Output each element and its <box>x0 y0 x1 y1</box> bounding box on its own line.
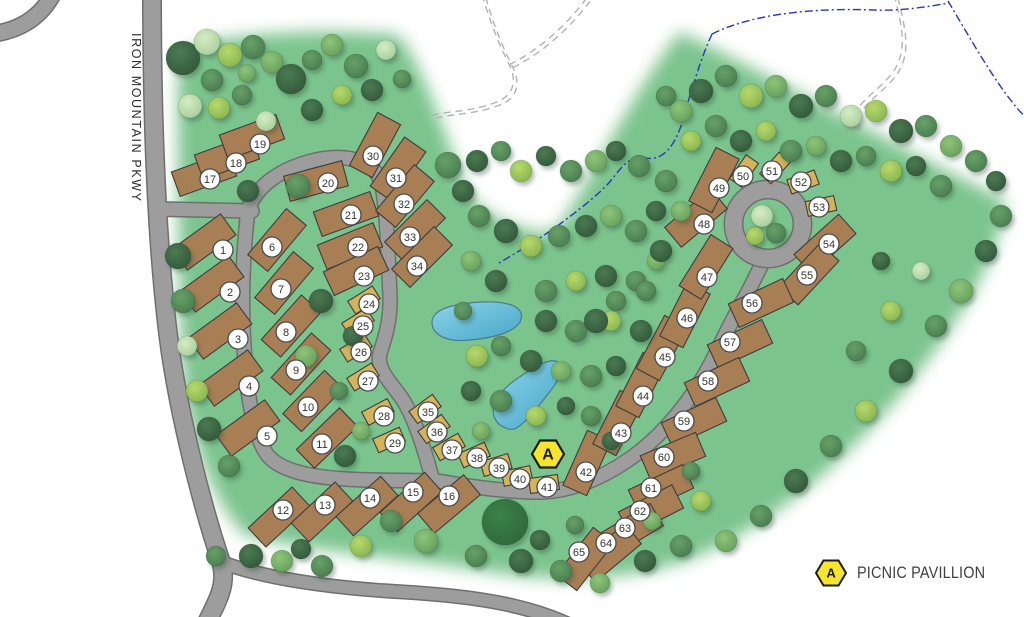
site-badge-44: 44 <box>633 386 653 406</box>
tree <box>485 270 507 292</box>
site-badge-20: 20 <box>318 173 338 193</box>
tree <box>461 251 481 271</box>
site-badge-30: 30 <box>363 146 383 166</box>
site-badge-9: 9 <box>286 360 306 380</box>
tree <box>975 240 997 262</box>
tree <box>461 381 481 401</box>
tree <box>321 34 343 56</box>
site-badge-36: 36 <box>427 422 447 442</box>
site-badge-29: 29 <box>385 433 405 453</box>
tree <box>580 365 602 387</box>
svg-text:21: 21 <box>345 210 357 222</box>
svg-text:17: 17 <box>204 174 216 186</box>
site-badge-49: 49 <box>709 178 729 198</box>
tree <box>238 64 256 82</box>
tree <box>655 170 677 192</box>
svg-text:40: 40 <box>514 474 526 486</box>
svg-text:48: 48 <box>698 219 710 231</box>
site-badge-2: 2 <box>220 282 240 302</box>
road-label: IRON MOUNTAIN PKWY <box>129 33 143 203</box>
site-badge-21: 21 <box>341 205 361 225</box>
tree <box>670 535 692 557</box>
tree <box>630 320 652 342</box>
svg-text:50: 50 <box>737 171 749 183</box>
tree <box>575 215 597 237</box>
tree <box>178 94 202 118</box>
site-badge-50: 50 <box>733 166 753 186</box>
tree <box>491 336 511 356</box>
tree <box>177 336 197 356</box>
tree <box>750 505 772 527</box>
site-badge-56: 56 <box>742 293 762 313</box>
legend-label: PICNIC PAVILLION <box>857 563 985 583</box>
tree <box>208 97 230 119</box>
tree <box>302 50 322 70</box>
tree <box>186 380 208 402</box>
tree <box>550 560 572 582</box>
svg-text:49: 49 <box>713 183 725 195</box>
tree <box>361 79 383 101</box>
svg-text:15: 15 <box>407 487 419 499</box>
site-badge-16: 16 <box>439 486 459 506</box>
map-canvas: 1234567891011121314151617181920212223242… <box>0 0 1024 617</box>
tree <box>606 291 626 311</box>
tree <box>454 302 472 320</box>
tree <box>715 65 737 87</box>
svg-text:12: 12 <box>277 505 289 517</box>
tree <box>352 422 370 440</box>
tree <box>585 150 607 172</box>
tree <box>309 289 333 313</box>
tree <box>468 205 490 227</box>
site-badge-6: 6 <box>262 237 282 257</box>
tree <box>557 397 575 415</box>
site-badge-31: 31 <box>386 168 406 188</box>
site-badge-54: 54 <box>819 234 839 254</box>
site-badge-25: 25 <box>353 316 373 336</box>
tree <box>856 146 876 166</box>
tree <box>689 79 713 103</box>
site-badge-60: 60 <box>654 447 674 467</box>
stream <box>712 3 949 34</box>
tree <box>291 539 311 559</box>
site-badge-3: 3 <box>228 329 248 349</box>
svg-text:14: 14 <box>364 493 376 505</box>
tree <box>276 64 306 94</box>
tree <box>256 111 276 131</box>
tree <box>494 219 518 243</box>
tree <box>472 422 490 440</box>
tree <box>435 152 461 178</box>
svg-text:54: 54 <box>823 239 835 251</box>
svg-text:37: 37 <box>446 445 458 457</box>
tree <box>965 150 987 172</box>
site-badge-64: 64 <box>596 533 616 553</box>
tree <box>949 279 973 303</box>
tree <box>682 462 700 480</box>
tree <box>311 555 333 577</box>
svg-text:61: 61 <box>645 483 657 495</box>
site-badge-46: 46 <box>677 308 697 328</box>
svg-text:65: 65 <box>573 547 585 559</box>
tree <box>650 240 672 262</box>
tree <box>606 141 626 161</box>
tree <box>201 69 223 91</box>
svg-text:18: 18 <box>230 158 242 170</box>
tree <box>739 84 763 108</box>
site-badge-47: 47 <box>697 267 717 287</box>
site-badge-45: 45 <box>655 347 675 367</box>
svg-text:59: 59 <box>678 416 690 428</box>
site-badge-40: 40 <box>510 469 530 489</box>
tree <box>730 130 752 152</box>
tree <box>548 225 570 247</box>
svg-text:7: 7 <box>278 284 284 296</box>
tree <box>756 121 776 141</box>
legend-marker-letter: A <box>826 566 836 581</box>
svg-text:63: 63 <box>619 523 631 535</box>
tree <box>595 265 617 287</box>
stream <box>948 1 1024 120</box>
svg-text:26: 26 <box>355 347 367 359</box>
picnic-pavilion-marker: A <box>814 558 848 588</box>
tree <box>906 156 926 176</box>
tree <box>765 75 787 97</box>
tree <box>560 160 582 182</box>
tree <box>780 140 802 162</box>
site-badge-38: 38 <box>467 448 487 468</box>
tree <box>606 356 626 376</box>
tree <box>671 201 691 221</box>
tree <box>990 205 1012 227</box>
tree <box>344 54 368 78</box>
tree <box>334 445 356 467</box>
tree <box>197 417 221 441</box>
tree <box>751 205 773 227</box>
tree <box>940 135 962 157</box>
tree <box>566 516 584 534</box>
svg-text:24: 24 <box>363 299 375 311</box>
tree <box>509 549 533 573</box>
site-badge-10: 10 <box>298 397 318 417</box>
tree <box>628 155 650 177</box>
tree <box>194 29 220 55</box>
site-badge-51: 51 <box>762 161 782 181</box>
tree <box>880 160 902 182</box>
site-badge-37: 37 <box>442 440 462 460</box>
svg-text:8: 8 <box>283 327 289 339</box>
tree <box>815 85 837 107</box>
tree <box>705 115 727 137</box>
svg-text:58: 58 <box>702 376 714 388</box>
site-badge-58: 58 <box>698 371 718 391</box>
tree <box>536 146 556 166</box>
svg-text:36: 36 <box>431 427 443 439</box>
tree <box>636 281 656 301</box>
svg-text:34: 34 <box>411 261 423 273</box>
tree <box>218 43 242 67</box>
site-badge-13: 13 <box>315 495 335 515</box>
tree <box>581 406 601 426</box>
tree <box>482 499 528 545</box>
tree <box>889 119 913 143</box>
site-badge-48: 48 <box>694 214 714 234</box>
svg-text:3: 3 <box>235 334 241 346</box>
legend: A PICNIC PAVILLION <box>814 558 1008 588</box>
site-badge-55: 55 <box>797 265 817 285</box>
site-badge-43: 43 <box>611 423 631 443</box>
site-badge-15: 15 <box>403 482 423 502</box>
tree <box>330 382 348 400</box>
tree <box>551 361 571 381</box>
tree <box>681 131 701 151</box>
trail <box>513 1 590 67</box>
tree <box>380 510 402 532</box>
tree <box>535 310 557 332</box>
site-badge-23: 23 <box>354 266 374 286</box>
svg-text:45: 45 <box>659 352 671 364</box>
svg-text:4: 4 <box>246 381 252 393</box>
tree <box>789 94 813 118</box>
site-badge-33: 33 <box>400 227 420 247</box>
svg-text:64: 64 <box>600 538 612 550</box>
tree <box>301 99 323 121</box>
tree <box>930 175 952 197</box>
svg-text:6: 6 <box>269 242 275 254</box>
svg-text:55: 55 <box>801 270 813 282</box>
svg-text:35: 35 <box>422 407 434 419</box>
tree <box>165 243 191 269</box>
tree <box>855 400 877 422</box>
tree <box>414 529 438 553</box>
tree <box>600 205 622 227</box>
site-badge-65: 65 <box>569 542 589 562</box>
tree <box>466 150 488 172</box>
tree <box>634 550 656 572</box>
svg-text:51: 51 <box>766 166 778 178</box>
svg-text:43: 43 <box>615 428 627 440</box>
site-badge-42: 42 <box>576 462 596 482</box>
svg-text:16: 16 <box>443 491 455 503</box>
svg-text:60: 60 <box>658 452 670 464</box>
svg-text:62: 62 <box>634 506 646 518</box>
pavilion-marker-letter: A <box>542 447 554 464</box>
tree <box>452 180 474 202</box>
tree <box>465 545 487 567</box>
site-badge-57: 57 <box>720 332 740 352</box>
svg-text:30: 30 <box>367 151 379 163</box>
site-badge-27: 27 <box>358 371 378 391</box>
svg-text:57: 57 <box>724 337 736 349</box>
site-badge-5: 5 <box>257 426 277 446</box>
svg-text:32: 32 <box>398 199 410 211</box>
pavilion-map-marker: A <box>532 441 564 468</box>
tree <box>872 252 890 270</box>
svg-text:53: 53 <box>813 202 825 214</box>
site-badge-63: 63 <box>615 518 635 538</box>
site-badge-24: 24 <box>359 294 379 314</box>
tree <box>237 180 259 202</box>
svg-text:52: 52 <box>795 177 807 189</box>
tree <box>239 544 263 568</box>
tree <box>820 435 842 457</box>
tree <box>656 86 676 106</box>
site-badge-12: 12 <box>273 500 293 520</box>
tree <box>286 174 310 198</box>
svg-text:39: 39 <box>493 463 505 475</box>
svg-text:28: 28 <box>378 411 390 423</box>
svg-text:23: 23 <box>358 271 370 283</box>
site-badge-17: 17 <box>200 169 220 189</box>
tree <box>520 235 542 257</box>
site-badge-61: 61 <box>641 478 661 498</box>
tree <box>376 40 396 60</box>
trail <box>431 0 513 116</box>
svg-text:31: 31 <box>390 173 402 185</box>
site-badge-34: 34 <box>407 256 427 276</box>
tree <box>830 150 852 172</box>
site-badge-22: 22 <box>348 237 368 257</box>
tree <box>350 535 372 557</box>
site-badge-52: 52 <box>791 172 811 192</box>
tree <box>566 271 586 291</box>
site-badge-39: 39 <box>489 458 509 478</box>
tree <box>746 227 764 245</box>
site-badge-59: 59 <box>674 411 694 431</box>
svg-text:19: 19 <box>254 139 266 151</box>
svg-text:47: 47 <box>701 272 713 284</box>
site-badge-41: 41 <box>537 477 557 497</box>
tree <box>393 70 411 88</box>
tree <box>535 280 557 302</box>
site-badge-1: 1 <box>213 240 233 260</box>
tree <box>218 455 240 477</box>
tree <box>912 262 930 280</box>
site-badge-28: 28 <box>374 406 394 426</box>
svg-text:20: 20 <box>322 178 334 190</box>
tree <box>584 309 608 333</box>
tree <box>915 115 937 137</box>
tree <box>846 341 866 361</box>
tree <box>332 85 352 105</box>
tree <box>590 573 610 593</box>
tree <box>625 220 647 242</box>
svg-text:22: 22 <box>352 242 364 254</box>
site-badge-7: 7 <box>271 279 291 299</box>
svg-text:13: 13 <box>319 500 331 512</box>
svg-text:38: 38 <box>471 453 483 465</box>
tree <box>715 530 737 552</box>
site-badge-8: 8 <box>276 322 296 342</box>
tree <box>241 35 265 59</box>
svg-text:27: 27 <box>362 376 374 388</box>
tree <box>806 136 826 156</box>
tree <box>232 85 252 105</box>
svg-text:33: 33 <box>404 232 416 244</box>
tree <box>520 350 542 372</box>
site-badge-14: 14 <box>360 488 380 508</box>
site-badge-26: 26 <box>351 342 371 362</box>
tree <box>881 301 901 321</box>
svg-text:29: 29 <box>389 438 401 450</box>
svg-text:1: 1 <box>220 245 226 257</box>
site-badge-53: 53 <box>809 197 829 217</box>
tree <box>510 160 532 182</box>
svg-text:10: 10 <box>302 402 314 414</box>
svg-text:56: 56 <box>746 298 758 310</box>
tree <box>784 469 808 493</box>
svg-text:5: 5 <box>264 431 270 443</box>
tree <box>840 105 862 127</box>
svg-text:46: 46 <box>681 313 693 325</box>
tree <box>925 315 947 337</box>
tree <box>986 171 1006 191</box>
site-badge-11: 11 <box>312 434 332 454</box>
tree <box>865 100 887 122</box>
tree <box>526 406 546 426</box>
site-badge-62: 62 <box>630 501 650 521</box>
tree <box>206 546 226 566</box>
svg-text:42: 42 <box>580 467 592 479</box>
campground-site-map: 1234567891011121314151617181920212223242… <box>0 0 1024 617</box>
tree <box>490 390 512 412</box>
site-badge-4: 4 <box>239 376 259 396</box>
tree <box>491 141 511 161</box>
tree <box>691 491 711 511</box>
trail <box>509 0 586 65</box>
svg-text:41: 41 <box>541 482 553 494</box>
site-badge-18: 18 <box>226 153 246 173</box>
svg-text:25: 25 <box>357 321 369 333</box>
site-badge-19: 19 <box>250 134 270 154</box>
svg-text:11: 11 <box>316 439 327 451</box>
tree <box>646 201 666 221</box>
svg-text:9: 9 <box>293 365 299 377</box>
tree <box>565 320 587 342</box>
tree <box>271 550 293 572</box>
svg-text:2: 2 <box>227 287 233 299</box>
svg-text:44: 44 <box>637 391 649 403</box>
tree <box>466 345 488 367</box>
tree <box>530 530 550 550</box>
site-badge-32: 32 <box>394 194 414 214</box>
tree <box>766 223 786 243</box>
tree <box>171 289 195 313</box>
site-badge-35: 35 <box>418 402 438 422</box>
trail <box>435 0 517 118</box>
tree <box>889 359 913 383</box>
